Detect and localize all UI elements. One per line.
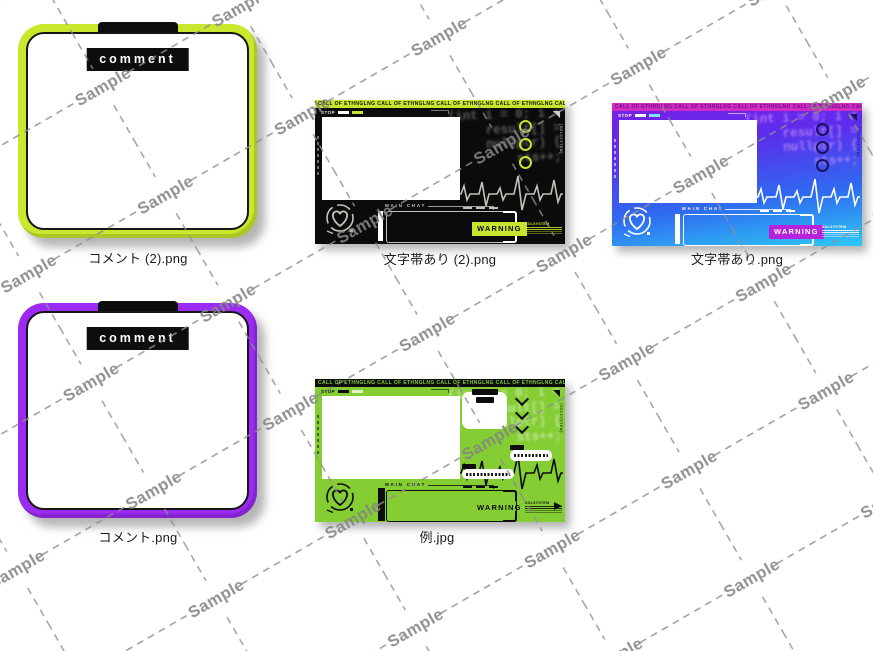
stream-overlay-thumbnail[interactable]: (int i = 0; i < result[] = nullptr) { st…: [315, 379, 565, 522]
chip: [352, 390, 363, 394]
chevron-icons: [517, 394, 527, 436]
chat-buttons: [760, 210, 795, 213]
bubble-tag: [462, 464, 476, 469]
file-name[interactable]: コメント.png: [13, 527, 263, 546]
bubble-tag: [510, 445, 524, 450]
speech-bubble: [510, 450, 552, 461]
file-name[interactable]: 文字帯あり.png: [612, 249, 862, 268]
top-text-band: CALL OF ETHNGLNG CALL OF ETHNGLNG CALL O…: [315, 379, 565, 387]
chat-input-bar: [675, 214, 680, 244]
system-vertical-label: [SOLSYSTEM]: [559, 403, 563, 433]
chat-buttons: [463, 486, 498, 489]
avatar-name-tag: [472, 389, 498, 395]
stream-overlay-thumbnail[interactable]: (int i = 0; i < result[] = nullptr) { st…: [612, 103, 862, 246]
chat-buttons: [463, 207, 498, 210]
avatar-sub-tag: [476, 397, 494, 403]
heart-recycle-icon: [323, 481, 357, 515]
chip: [635, 114, 646, 118]
top-text-band: CALL OF ETHNGLNG CALL OF ETHNGLNG CALL O…: [315, 100, 565, 108]
main-chat-label: MAIN CHAT: [682, 206, 723, 211]
system-vertical-label: [SOLSYSTEM]: [559, 124, 563, 154]
edge-ticks: [614, 139, 616, 181]
top-text-band: CALL OF ETHNGLNG CALL OF ETHNGLNG CALL O…: [612, 103, 862, 111]
paper-plane-icon: [554, 502, 562, 510]
file-name[interactable]: 例.jpg: [312, 527, 562, 546]
warning-badge: WARNING: [472, 222, 527, 236]
warning-badge: WARNING: [472, 501, 527, 515]
warning-badge: WARNING: [769, 225, 824, 239]
system-vertical-label: [SOLSYSTEM]: [856, 127, 860, 157]
status-rings: [519, 120, 532, 169]
status-rings: [816, 123, 829, 172]
main-chat-label: MAIN CHAT: [385, 482, 426, 487]
chip: [352, 111, 363, 115]
file-gallery: comment コメント (2).png comment コメント.png (i…: [0, 0, 873, 651]
corner-triangle-icon: [553, 390, 560, 397]
speech-bubble: [462, 469, 514, 479]
corner-triangle-icon: [553, 111, 560, 118]
warning-note: SOLSYSTEM: [822, 225, 859, 237]
comment-frame-thumbnail[interactable]: comment: [18, 24, 257, 238]
capture-window: [619, 120, 757, 203]
comment-label: comment: [86, 48, 189, 71]
stop-indicator: STOP: [321, 389, 363, 394]
corner-line: [728, 113, 746, 114]
corner-line: [431, 389, 449, 390]
capture-window: [322, 117, 460, 200]
heart-recycle-icon: [323, 202, 357, 236]
heart-recycle-icon: [620, 205, 654, 239]
comment-label: comment: [86, 327, 189, 350]
file-name[interactable]: コメント (2).png: [13, 248, 263, 267]
corner-triangle-icon: [850, 114, 857, 121]
chat-input-bar: [378, 211, 383, 241]
stream-overlay-thumbnail[interactable]: (int i = 0; i < result[] = nullptr) { st…: [315, 100, 565, 244]
comment-frame-thumbnail[interactable]: comment: [18, 303, 257, 518]
corner-line: [431, 110, 449, 111]
edge-ticks: [317, 415, 319, 457]
capture-window: [322, 396, 460, 479]
chip: [338, 111, 349, 115]
chat-input-bar: [378, 488, 385, 521]
file-name[interactable]: 文字帯あり (2).png: [315, 249, 565, 268]
chip: [649, 114, 660, 118]
main-chat-label: MAIN CHAT: [385, 203, 426, 208]
stop-indicator: STOP: [321, 110, 363, 115]
chip: [338, 390, 349, 394]
avatar-box: [462, 392, 507, 429]
stop-indicator: STOP: [618, 113, 660, 118]
warning-note: SOLSYSTEM: [525, 222, 562, 234]
edge-ticks: [317, 136, 319, 178]
